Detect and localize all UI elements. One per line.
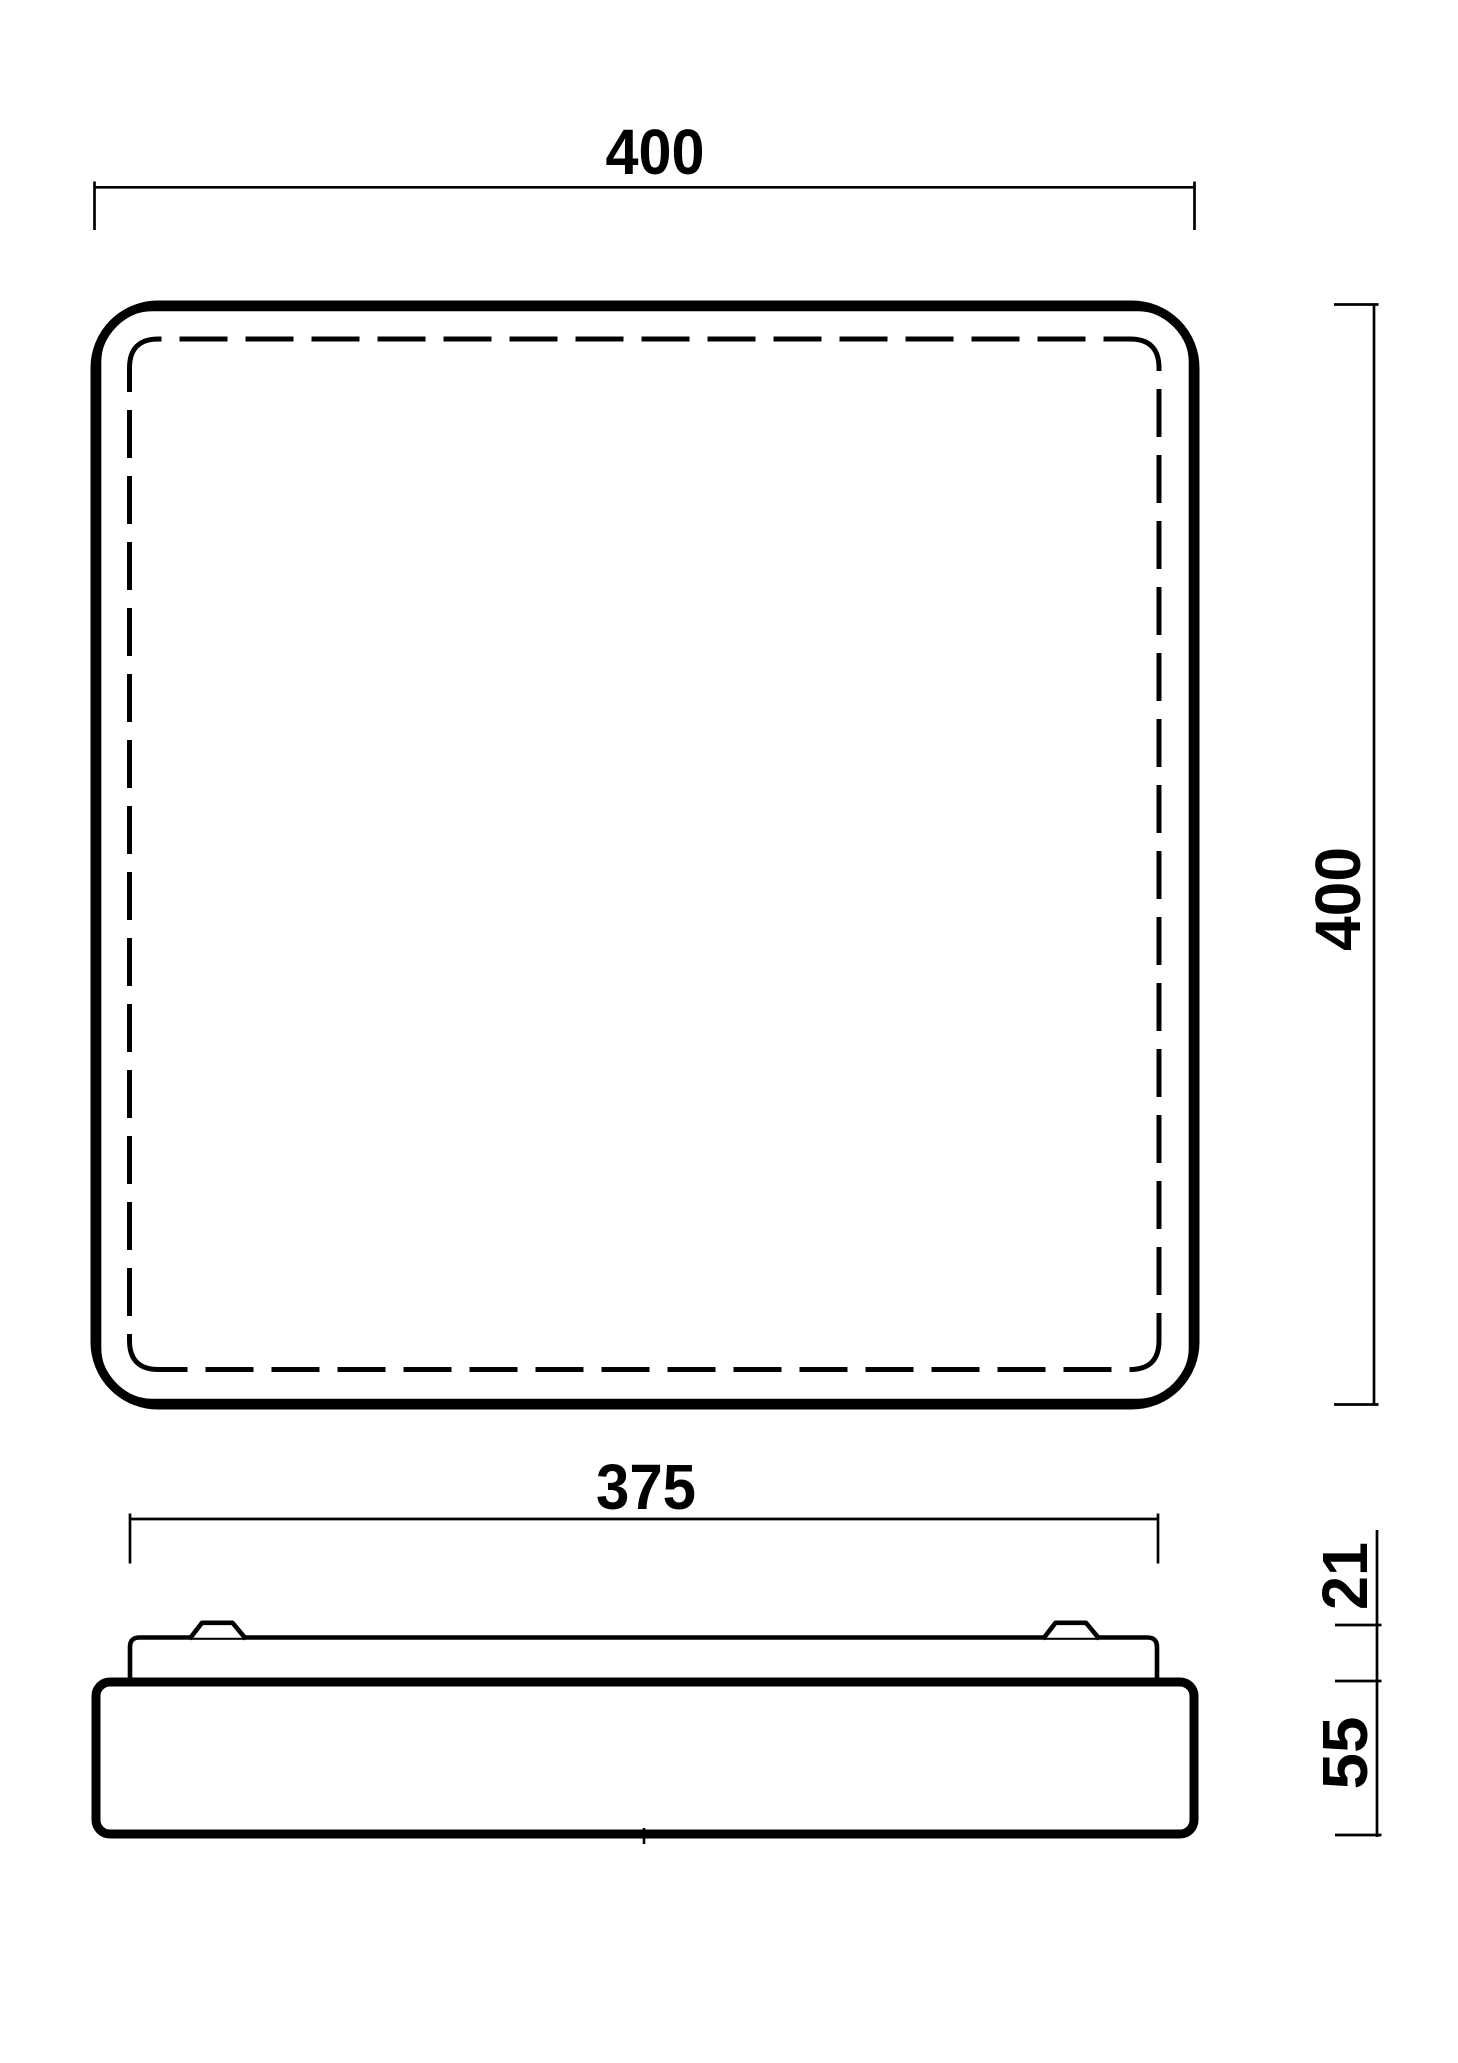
svg-text:400: 400	[606, 116, 705, 188]
svg-text:55: 55	[1309, 1717, 1381, 1790]
svg-text:400: 400	[1302, 847, 1374, 951]
svg-text:375: 375	[596, 1451, 696, 1523]
svg-text:21: 21	[1309, 1542, 1381, 1610]
